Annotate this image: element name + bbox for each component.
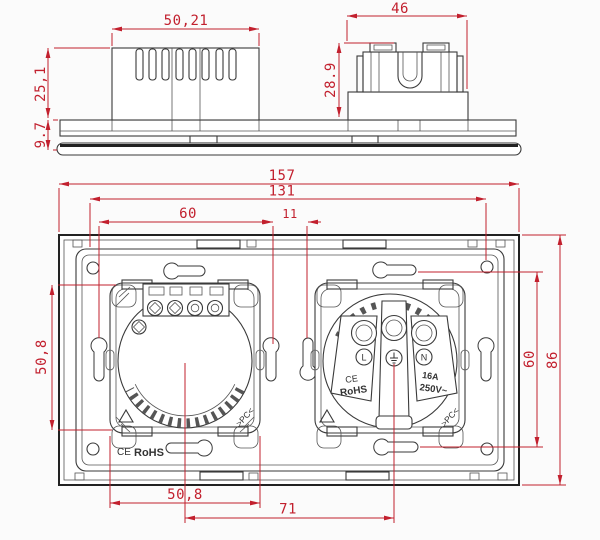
dim-switch-height: 25,1 xyxy=(33,66,49,102)
technical-drawing-page: 50,21 46 25,1 9.7 28.9 xyxy=(0,0,600,540)
earth-terminal-icon xyxy=(386,350,402,366)
dim-overall-width: 157 xyxy=(269,168,296,184)
side-view: 50,21 46 25,1 9.7 28.9 xyxy=(33,1,521,155)
neutral-label: N xyxy=(421,353,428,363)
frame-clip-tab xyxy=(352,136,378,143)
dim-module-gap: 11 xyxy=(282,207,297,221)
dim-switch-width: 50,21 xyxy=(164,13,209,29)
dim-socket-height: 28.9 xyxy=(323,62,339,98)
dim-panel-thickness: 9.7 xyxy=(33,122,49,149)
dim-switch-module-height: 50,8 xyxy=(34,339,50,375)
socket-housing-profile xyxy=(348,43,468,120)
plate-rohs-marking: RoHS xyxy=(134,447,164,459)
socket-ce-marking: CE xyxy=(345,373,359,385)
plate-ce-marking: CE xyxy=(117,447,131,458)
dim-module-center-pitch: 71 xyxy=(279,502,297,518)
terminal-screw-holes xyxy=(352,316,437,346)
mounting-frame-profile xyxy=(60,120,516,136)
rear-view: >PC< xyxy=(34,168,566,523)
frame-clip-tab xyxy=(190,136,217,143)
panel-cross-section xyxy=(57,120,521,155)
dim-hole-pitch-vertical: 60 xyxy=(522,350,538,368)
dim-plate-width: 131 xyxy=(269,184,296,200)
dim-socket-width: 46 xyxy=(391,1,409,17)
switch-housing-profile xyxy=(112,48,259,120)
dim-overall-height: 86 xyxy=(545,351,561,369)
wall-switch-socket-drawing: 50,21 46 25,1 9.7 28.9 xyxy=(0,0,600,540)
dim-hole-pitch-horizontal: 60 xyxy=(179,206,197,222)
live-label: L xyxy=(361,353,366,363)
socket-module: L N CE RoHS 16A 250V~ >PC< xyxy=(311,280,469,448)
